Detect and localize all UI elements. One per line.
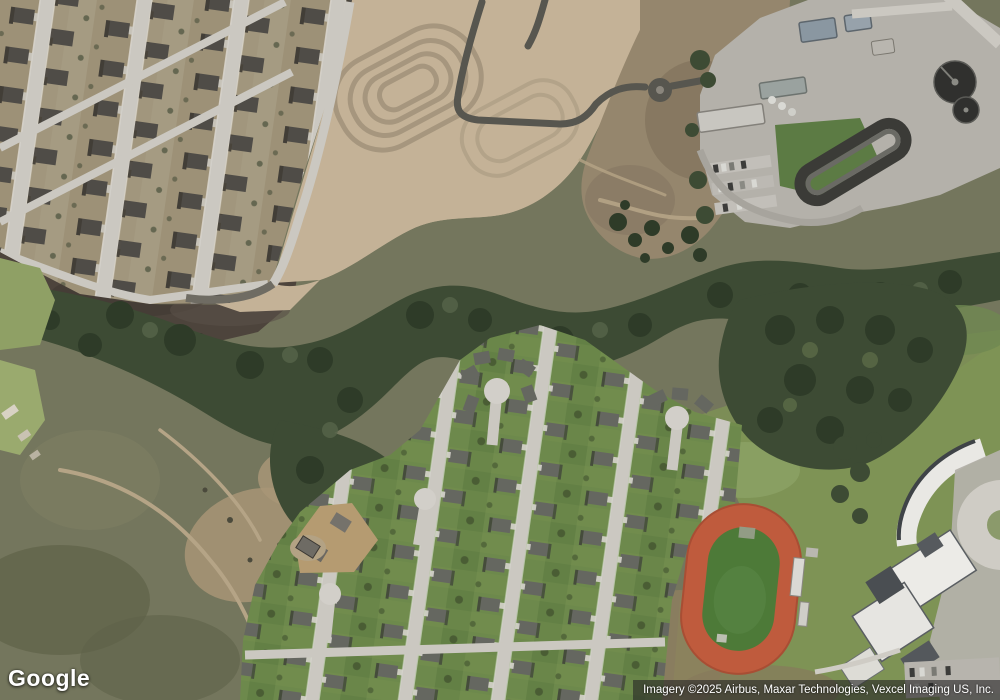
lone-house (290, 535, 326, 561)
field-equipment (738, 527, 755, 540)
imagery-attribution: Imagery ©2025 Airbus, Maxar Technologies… (633, 680, 1000, 700)
satellite-imagery (0, 0, 1000, 700)
google-logo[interactable]: Google (8, 665, 90, 692)
attribution-text: Imagery ©2025 Airbus, Maxar Technologies… (643, 684, 994, 696)
map-viewport: Google Imagery ©2025 Airbus, Maxar Techn… (0, 0, 1000, 700)
map-canvas[interactable] (0, 0, 1000, 700)
